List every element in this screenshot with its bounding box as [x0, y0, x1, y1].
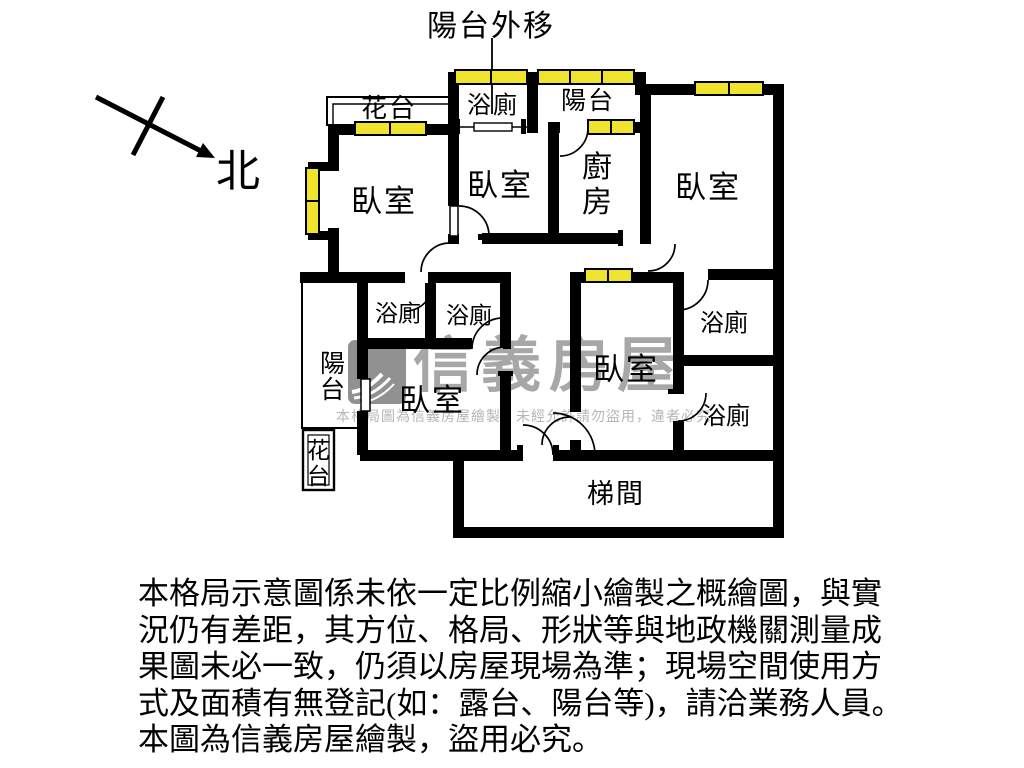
room-label-kitchen-char2: 房: [582, 186, 612, 219]
room-label-balcony-top: 陽台: [561, 87, 615, 115]
sliding-door-leaf: [474, 123, 512, 131]
north-label: 北: [216, 147, 260, 196]
room-label-flower-bed-bottom-char1: 花: [307, 438, 330, 463]
disclaimer-line: 式及面積有無登記(如：露台、陽台等)，請洽業務人員。: [138, 686, 938, 723]
room-label-stairwell: 梯間: [587, 479, 645, 509]
walls: [300, 72, 784, 538]
room-label-bedroom-bottom-middle: 臥室: [593, 352, 659, 387]
room-label-bedroom-top-left: 臥室: [351, 184, 417, 219]
room-label-flower-bed-top: 花台: [361, 94, 417, 123]
room-label-bath-right-lower: 浴廁: [702, 403, 750, 430]
annotation-balcony-moved: 陽台外移: [427, 10, 555, 43]
room-label-balcony-left-char2: 台: [320, 376, 345, 404]
room-label-bath-right-upper: 浴廁: [700, 310, 748, 337]
disclaimer-line: 本圖為信義房屋繪製，盜用必究。: [138, 722, 938, 759]
room-label-bath-mid-right: 浴廁: [446, 303, 492, 328]
window: [588, 120, 634, 134]
room-label-kitchen-char1: 廚: [582, 151, 612, 184]
window: [538, 70, 634, 84]
room-label-bedroom-top-right: 臥室: [675, 170, 741, 205]
room-label-bedroom-bottom-left: 臥室: [399, 383, 465, 418]
room-label-flower-bed-bottom-char2: 台: [307, 464, 330, 489]
window: [585, 269, 632, 282]
disclaimer-line: 果圖未必一致，仍須以房屋現場為準；現場空間使用方: [138, 649, 938, 686]
north-arrow: [96, 97, 215, 158]
room-label-bath-top: 浴廁: [467, 92, 519, 119]
room-label-bedroom-top-middle: 臥室: [467, 168, 533, 203]
window: [695, 82, 763, 95]
disclaimer-line: 本格局示意圖係未依一定比例縮小繪製之概繪圖，與實: [138, 576, 938, 613]
window: [306, 168, 319, 234]
disclaimer-text: 本格局示意圖係未依一定比例縮小繪製之概繪圖，與實 況仍有差距，其方位、格局、形狀…: [138, 576, 938, 759]
window: [355, 122, 426, 135]
disclaimer-line: 況仍有差距，其方位、格局、形狀等與地政機關測量成: [138, 613, 938, 650]
room-label-balcony-left-char1: 陽: [320, 351, 345, 378]
floorplan-page: 信義房屋 本格局圖為信義房屋繪製，未經允許請勿盜用，違者必究: [0, 0, 1024, 768]
window: [455, 70, 527, 84]
room-label-bath-mid-left: 浴廁: [375, 301, 421, 326]
